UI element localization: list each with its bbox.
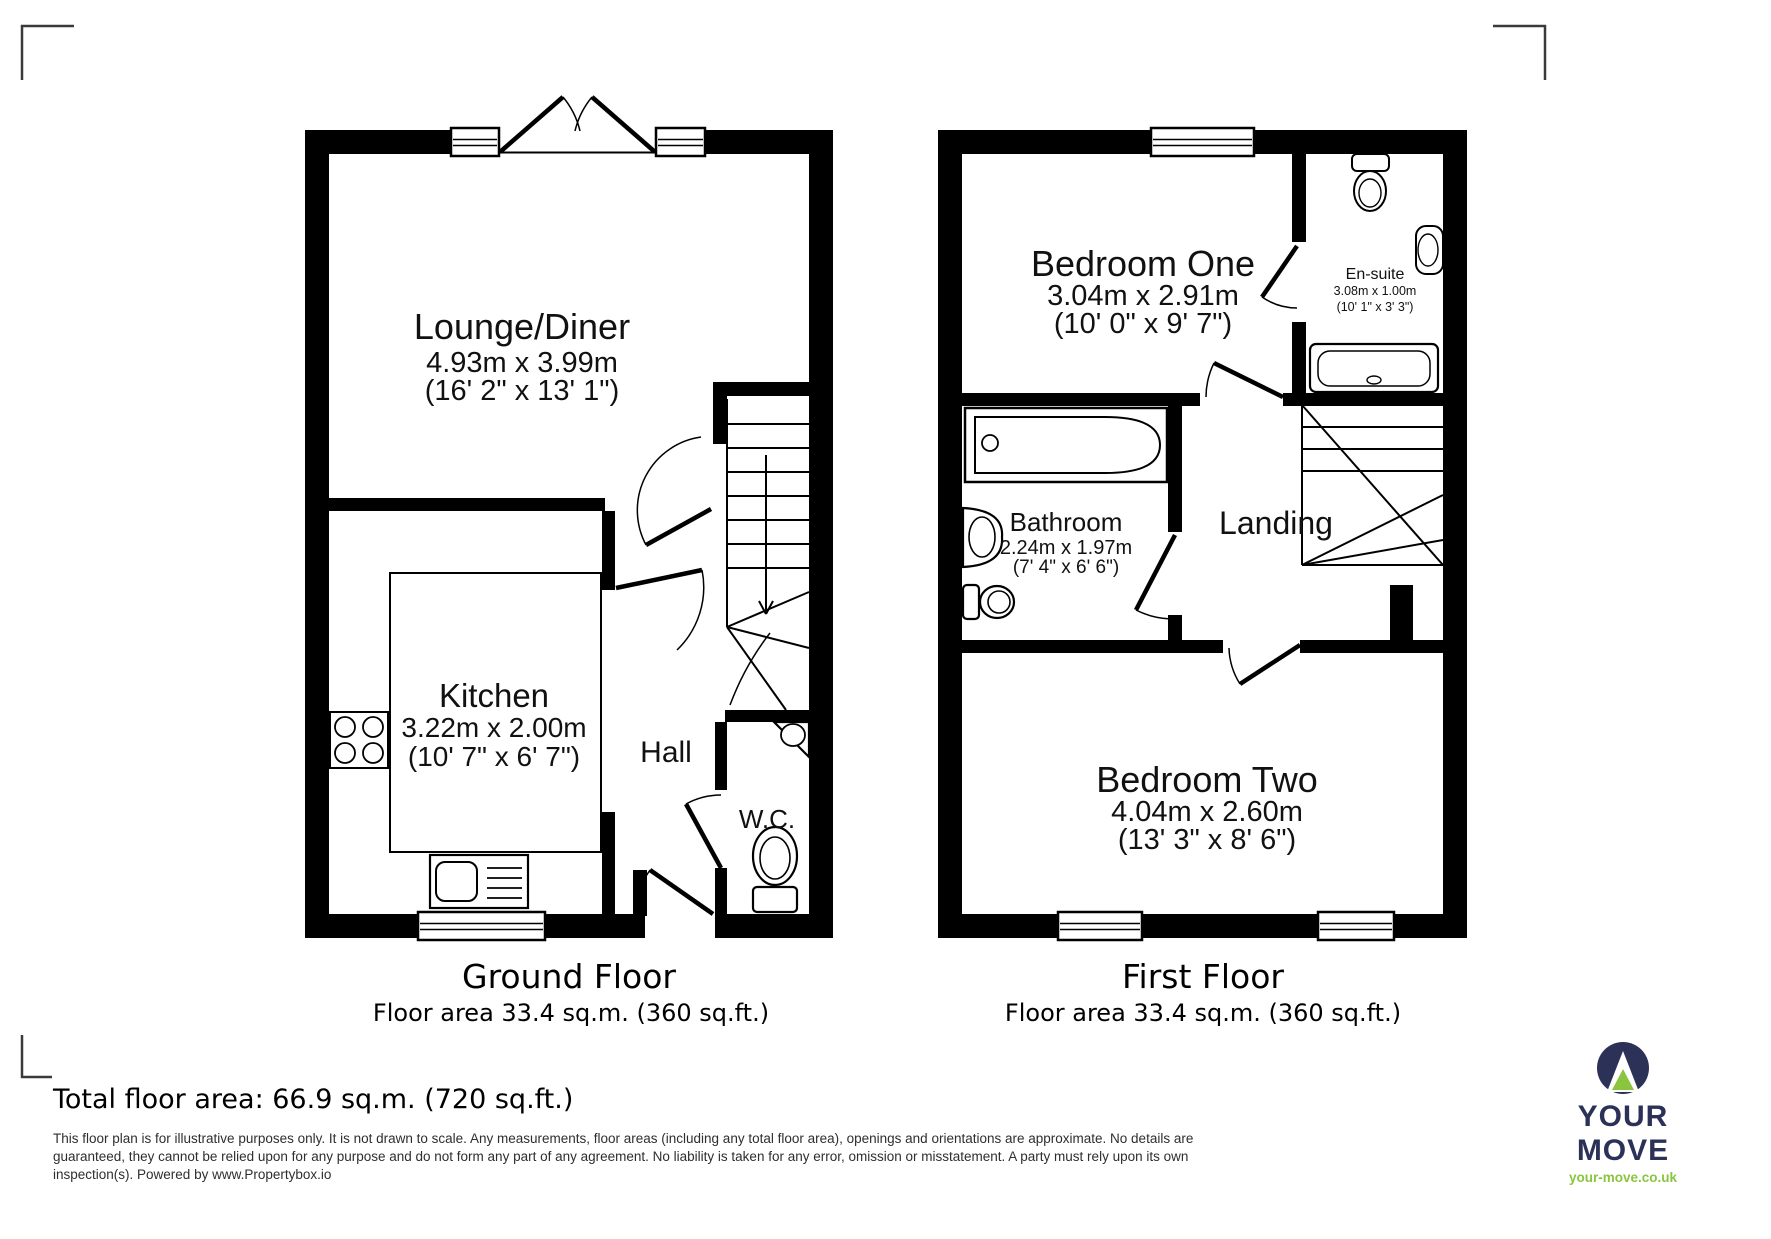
basin-icon (963, 508, 1002, 567)
lounge-imperial: (16' 2" x 13' 1") (425, 375, 619, 407)
ensuite-imperial: (10' 1" x 3' 3") (1337, 300, 1414, 314)
floor-captions: Ground Floor Floor area 33.4 sq.m. (360 … (373, 957, 1401, 1027)
corner-basin-icon (774, 722, 809, 757)
bedroom-two-door (1229, 645, 1300, 684)
ground-floor-area: Floor area 33.4 sq.m. (360 sq.ft.) (373, 999, 769, 1027)
disclaimer-line: inspection(s). Powered by www.Propertybo… (53, 1166, 1193, 1184)
toilet-icon (1352, 154, 1389, 211)
wc-door (686, 795, 721, 868)
disclaimer-line: guaranteed, they cannot be relied upon f… (53, 1148, 1193, 1166)
ground-floor-plan: Lounge/Diner 4.93m x 3.99m (16' 2" x 13'… (305, 97, 833, 940)
ensuite-label: En-suite (1346, 266, 1405, 283)
first-floor-plan: Bedroom One 3.04m x 2.91m (10' 0" x 9' 7… (938, 128, 1467, 940)
agency-logo: YOUR MOVE your-move.co.uk (1528, 1040, 1718, 1185)
kitchen-door (616, 570, 704, 650)
lounge-door (637, 437, 711, 545)
first-interior-walls (962, 154, 1443, 653)
floorplan-drawing: Lounge/Diner 4.93m x 3.99m (16' 2" x 13'… (0, 0, 1771, 1080)
kitchen-label: Kitchen (439, 677, 549, 714)
bathroom-imperial: (7' 4" x 6' 6") (1013, 557, 1119, 578)
ensuite-door (1262, 246, 1297, 308)
bathroom-metric: 2.24m x 1.97m (1000, 537, 1132, 559)
floorplan-page: Lounge/Diner 4.93m x 3.99m (16' 2" x 13'… (0, 0, 1771, 1239)
toilet-icon (753, 827, 797, 912)
disclaimer: This floor plan is for illustrative purp… (53, 1130, 1193, 1184)
bathroom-door (1136, 535, 1175, 619)
first-floor-title: First Floor (1122, 957, 1284, 996)
your-move-mark-icon (1595, 1040, 1651, 1096)
bedroom-one-door (1206, 363, 1283, 397)
lounge-label: Lounge/Diner (414, 306, 630, 347)
first-floor-area: Floor area 33.4 sq.m. (360 sq.ft.) (1005, 999, 1401, 1027)
ensuite-metric: 3.08m x 1.00m (1334, 284, 1417, 298)
bedroom-two-label: Bedroom Two (1096, 759, 1317, 800)
disclaimer-line: This floor plan is for illustrative purp… (53, 1130, 1193, 1148)
shower-icon (1310, 344, 1438, 392)
front-door (633, 870, 713, 916)
bathroom-label: Bathroom (1010, 507, 1123, 537)
ground-floor-title: Ground Floor (462, 957, 676, 996)
logo-url-text: your-move.co.uk (1528, 1170, 1718, 1185)
bedroom-one-imperial: (10' 0" x 9' 7") (1054, 308, 1232, 340)
logo-brand-text: YOUR MOVE (1528, 1100, 1718, 1168)
wc-label: W.C. (739, 804, 795, 834)
hob-icon (330, 712, 388, 768)
bedroom-one-label: Bedroom One (1031, 243, 1255, 284)
stairs-ground (727, 399, 809, 710)
total-floor-area: Total floor area: 66.9 sq.m. (720 sq.ft.… (53, 1084, 573, 1115)
hall-label: Hall (640, 736, 692, 769)
sink-icon (430, 855, 528, 908)
basin-icon (1416, 226, 1443, 274)
kitchen-metric: 3.22m x 2.00m (401, 712, 586, 743)
bath-icon (965, 408, 1167, 482)
french-doors (497, 97, 658, 153)
ground-interior-walls (329, 382, 809, 914)
stairs-first (1302, 405, 1443, 565)
bedroom-two-imperial: (13' 3" x 8' 6") (1118, 824, 1296, 856)
toilet-icon (963, 585, 1014, 619)
kitchen-imperial: (10' 7" x 6' 7") (408, 741, 580, 772)
landing-label: Landing (1219, 505, 1333, 541)
